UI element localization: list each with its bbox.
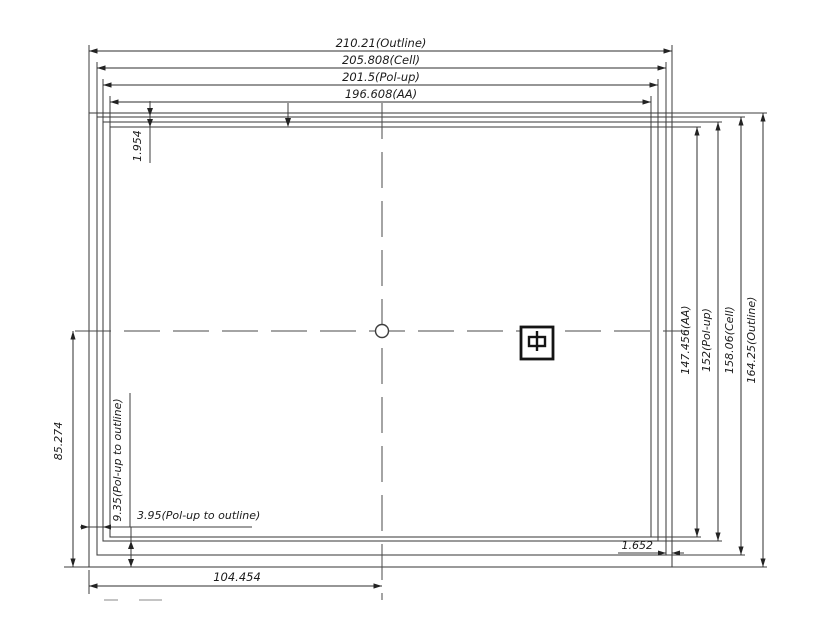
dim-label-outline-height: 164.25(Outline) (745, 297, 758, 384)
dim-label-polup-outline-bottom: 3.95(Pol-up to outline) (137, 509, 260, 522)
dim-center-to-bottom: 85.274 (52, 331, 89, 567)
center-circle (376, 325, 389, 338)
dim-label-left-to-center: 104.454 (213, 570, 261, 584)
dim-label-polup-height: 152(Pol-up) (700, 308, 713, 372)
panel-outline-drawing: 210.21(Outline) 205.808(Cell) 201.5(Pol-… (0, 0, 825, 641)
centerlines (75, 103, 689, 600)
dim-label-center-to-bottom: 85.274 (52, 422, 65, 461)
arrow-down (128, 559, 134, 567)
dim-label-polup-width: 201.5(Pol-up) (342, 70, 420, 84)
dim-top-left-offset: 1.954 (131, 101, 153, 163)
panel-rectangles (89, 113, 672, 567)
arrow-left (103, 525, 111, 530)
dim-label-right-edge-offset: 1.652 (622, 539, 654, 552)
dim-label-cell-height: 158.06(Cell) (723, 306, 736, 374)
dim-label-aa-width: 196.608(AA) (345, 87, 417, 101)
arrow-down (147, 119, 153, 127)
drawing-canvas: 210.21(Outline) 205.808(Cell) 201.5(Pol-… (0, 0, 825, 641)
dim-label-polup-outline-side: 9.35(Pol-up to outline) (111, 398, 124, 521)
arrow-up (128, 541, 134, 549)
center-mark-box: 中 (521, 327, 553, 359)
dim-label-aa-height: 147.456(AA) (679, 305, 692, 374)
dim-label-cell-width: 205.808(Cell) (342, 53, 420, 67)
dim-label-top-offset: 1.954 (131, 130, 144, 162)
outline-rect (89, 113, 672, 567)
right-dimensions: 147.456(AA) 152(Pol-up) 158.06(Cell) 164… (651, 113, 767, 567)
arrow-down (147, 108, 153, 116)
dim-left-to-center: 104.454 (89, 570, 382, 594)
dim-label-outline-width: 210.21(Outline) (336, 36, 427, 50)
dim-polup-to-outline-bottom: 3.95(Pol-up to outline) (128, 509, 260, 567)
arrow-right (81, 525, 89, 530)
